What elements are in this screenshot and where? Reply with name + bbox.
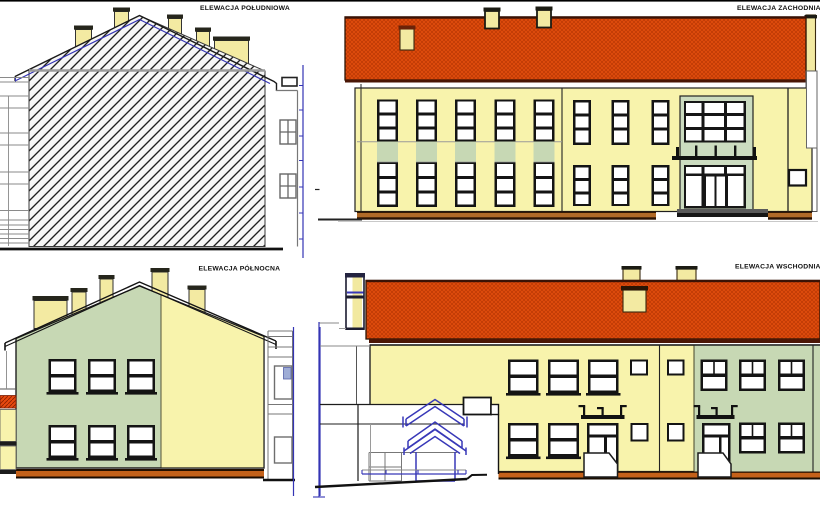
svg-text:ELEWACJA PÓŁNOCNA: ELEWACJA PÓŁNOCNA [199, 264, 281, 273]
svg-text:ELEWACJA POŁUDNIOWA: ELEWACJA POŁUDNIOWA [200, 5, 290, 12]
svg-text:ELEWACJA ZACHODNIA: ELEWACJA ZACHODNIA [737, 5, 820, 12]
svg-text:ELEWACJA WSCHODNIA: ELEWACJA WSCHODNIA [735, 264, 820, 271]
